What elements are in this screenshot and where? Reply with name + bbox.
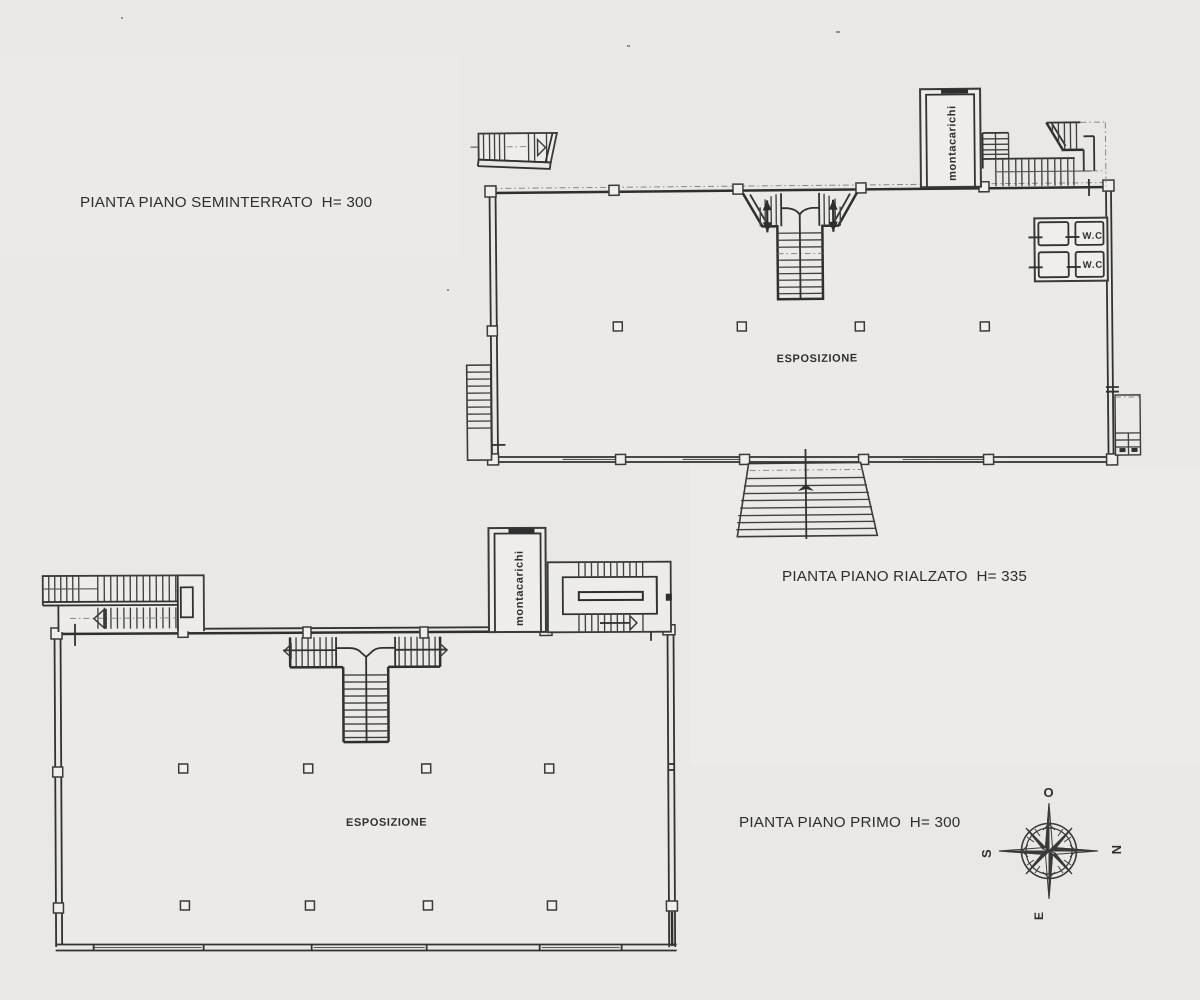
svg-text:PIANTA PIANO SEMINTERRATO H=: PIANTA PIANO SEMINTERRATO H= 300 — [80, 194, 372, 211]
svg-text:montacarichi: montacarichi — [946, 105, 959, 181]
svg-text:ESPOSIZIONE: ESPOSIZIONE — [777, 352, 858, 365]
svg-text:W.C: W.C — [1082, 231, 1102, 242]
svg-text:O: O — [1044, 785, 1054, 800]
svg-text:montacarichi: montacarichi — [514, 550, 526, 626]
svg-text:W.C: W.C — [1083, 260, 1103, 271]
svg-text:N: N — [1109, 845, 1124, 854]
svg-text:PIANTA PIANO PRIMO H= 300: PIANTA PIANO PRIMO H= 300 — [739, 814, 960, 831]
svg-text:S: S — [979, 849, 994, 858]
svg-text:ESPOSIZIONE: ESPOSIZIONE — [346, 817, 427, 829]
svg-text:E: E — [1032, 912, 1046, 920]
svg-text:PIANTA PIANO RIALZATO H= 335: PIANTA PIANO RIALZATO H= 335 — [782, 568, 1027, 585]
